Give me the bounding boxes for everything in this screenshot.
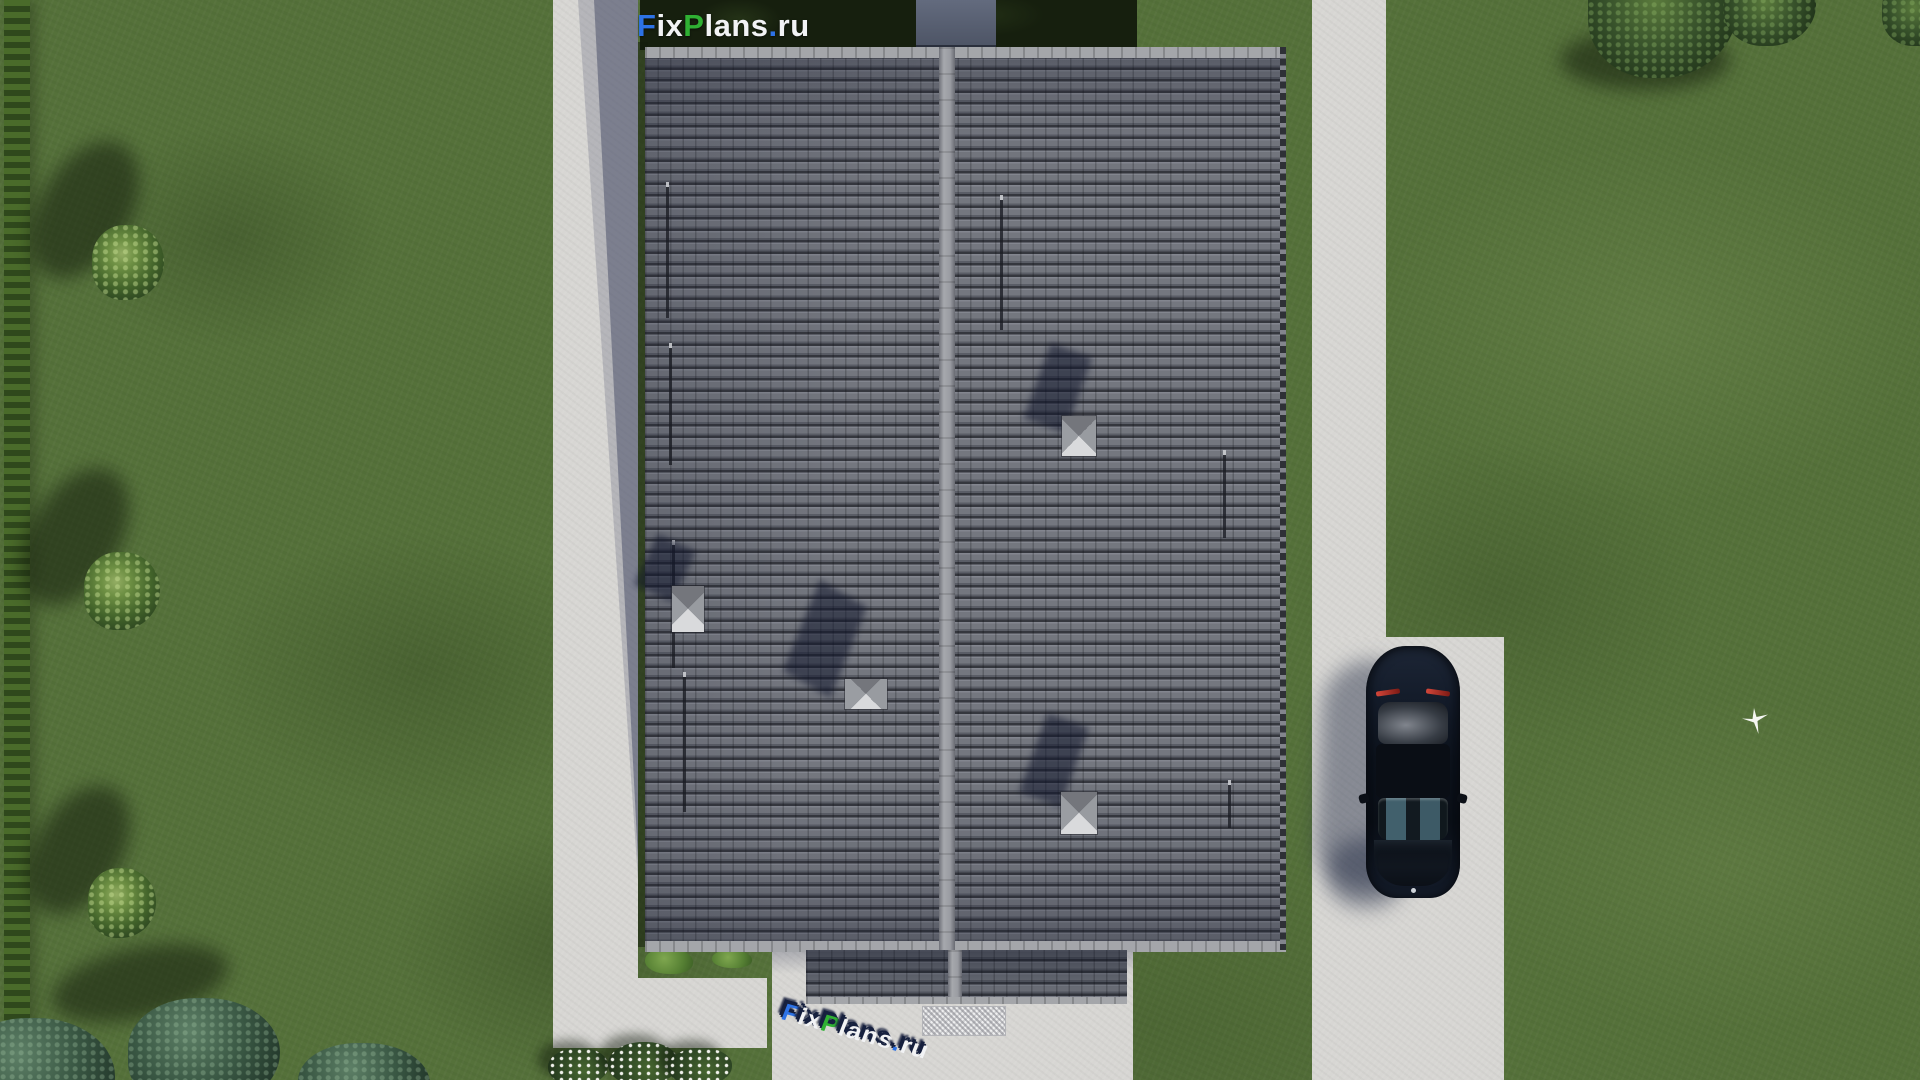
roof-extension-ridge xyxy=(948,950,962,1004)
base-shrub xyxy=(712,950,752,968)
roof-vent xyxy=(1062,416,1096,456)
windshield xyxy=(1378,798,1448,840)
brand-segment: F xyxy=(637,8,656,43)
brand-watermark: FixPlans.ru xyxy=(637,8,810,44)
roof-rail xyxy=(1223,450,1226,538)
roof-extension-eave xyxy=(806,997,1127,1004)
roof-rail xyxy=(683,672,686,812)
aerial-render-scene: FixPlans.ru FixPlans.ru xyxy=(0,0,1920,1080)
chimney-slab xyxy=(916,0,996,48)
roof-eave-top xyxy=(645,47,1286,58)
roof-ridge xyxy=(939,47,955,950)
flower-bush xyxy=(608,1042,678,1080)
flower-bush xyxy=(668,1048,732,1080)
brand-segment: ru xyxy=(778,8,810,43)
brand-segment: P xyxy=(683,8,704,43)
brand-segment: . xyxy=(769,8,778,43)
car xyxy=(1366,646,1462,900)
roof-edge-caps xyxy=(1280,47,1286,950)
brand-segment: ix xyxy=(656,8,683,43)
roof-shading xyxy=(645,47,1286,950)
driveway xyxy=(1312,0,1386,640)
roof-rail xyxy=(666,182,669,318)
brand-segment: lans xyxy=(704,8,768,43)
roof-vent xyxy=(845,679,887,709)
roof-rail xyxy=(1000,195,1003,330)
roof-extension-shade xyxy=(806,950,1127,1004)
roof-vent xyxy=(672,586,704,632)
bird-icon xyxy=(1736,706,1774,738)
roof-rail xyxy=(1228,780,1231,828)
doormat xyxy=(922,1006,1006,1036)
roof-vent xyxy=(1061,792,1097,834)
hood xyxy=(1374,840,1452,886)
rear-window xyxy=(1378,702,1448,744)
entry-pad xyxy=(553,978,767,1048)
roof-rail xyxy=(669,343,672,465)
flower-bush xyxy=(548,1048,608,1080)
bumper-light xyxy=(1411,888,1416,893)
car-roof xyxy=(1376,744,1450,798)
